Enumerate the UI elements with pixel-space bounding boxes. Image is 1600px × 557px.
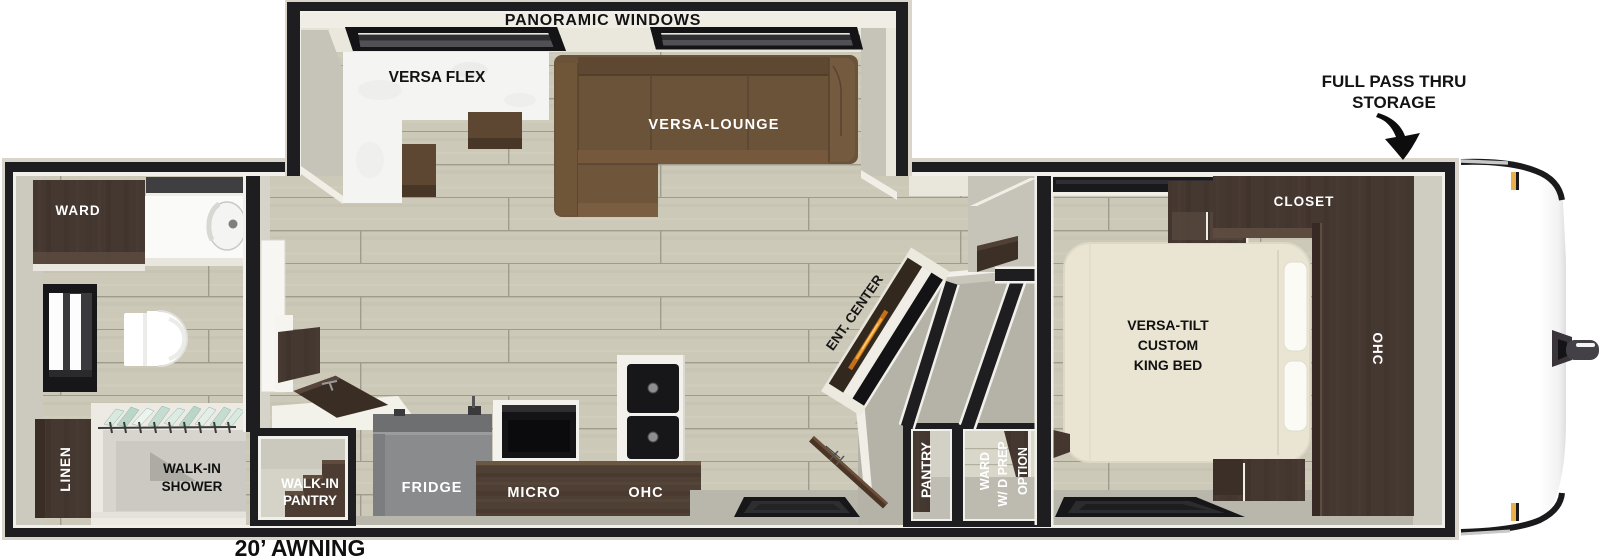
svg-text:WALK-IN: WALK-IN — [281, 476, 339, 491]
svg-text:PANORAMIC WINDOWS: PANORAMIC WINDOWS — [505, 12, 701, 29]
svg-text:CLOSET: CLOSET — [1274, 194, 1335, 209]
svg-text:VERSA-LOUNGE: VERSA-LOUNGE — [648, 117, 779, 133]
svg-text:20’ AWNING: 20’ AWNING — [235, 535, 366, 557]
svg-text:FULL PASS THRU: FULL PASS THRU — [1322, 72, 1467, 91]
svg-text:SHOWER: SHOWER — [162, 479, 223, 494]
svg-text:VERSA FLEX: VERSA FLEX — [389, 69, 486, 86]
svg-text:OHC: OHC — [1370, 333, 1385, 366]
svg-text:MICRO: MICRO — [507, 485, 560, 501]
svg-text:PANTRY: PANTRY — [918, 441, 934, 498]
svg-text:CUSTOM: CUSTOM — [1138, 337, 1198, 353]
svg-text:LINEN: LINEN — [58, 446, 73, 492]
svg-text:WARD: WARD — [978, 452, 992, 490]
svg-text:OPTION: OPTION — [1016, 447, 1030, 495]
svg-text:PANTRY: PANTRY — [283, 493, 337, 508]
svg-text:VERSA-TILT: VERSA-TILT — [1127, 317, 1209, 333]
svg-text:WARD: WARD — [55, 203, 100, 218]
svg-text:KING BED: KING BED — [1134, 357, 1202, 373]
svg-text:OHC: OHC — [628, 485, 663, 501]
svg-text:W/ D PREP: W/ D PREP — [996, 441, 1010, 506]
svg-text:STORAGE: STORAGE — [1352, 93, 1436, 112]
svg-text:WALK-IN: WALK-IN — [163, 461, 221, 476]
svg-text:FRIDGE: FRIDGE — [402, 480, 463, 496]
